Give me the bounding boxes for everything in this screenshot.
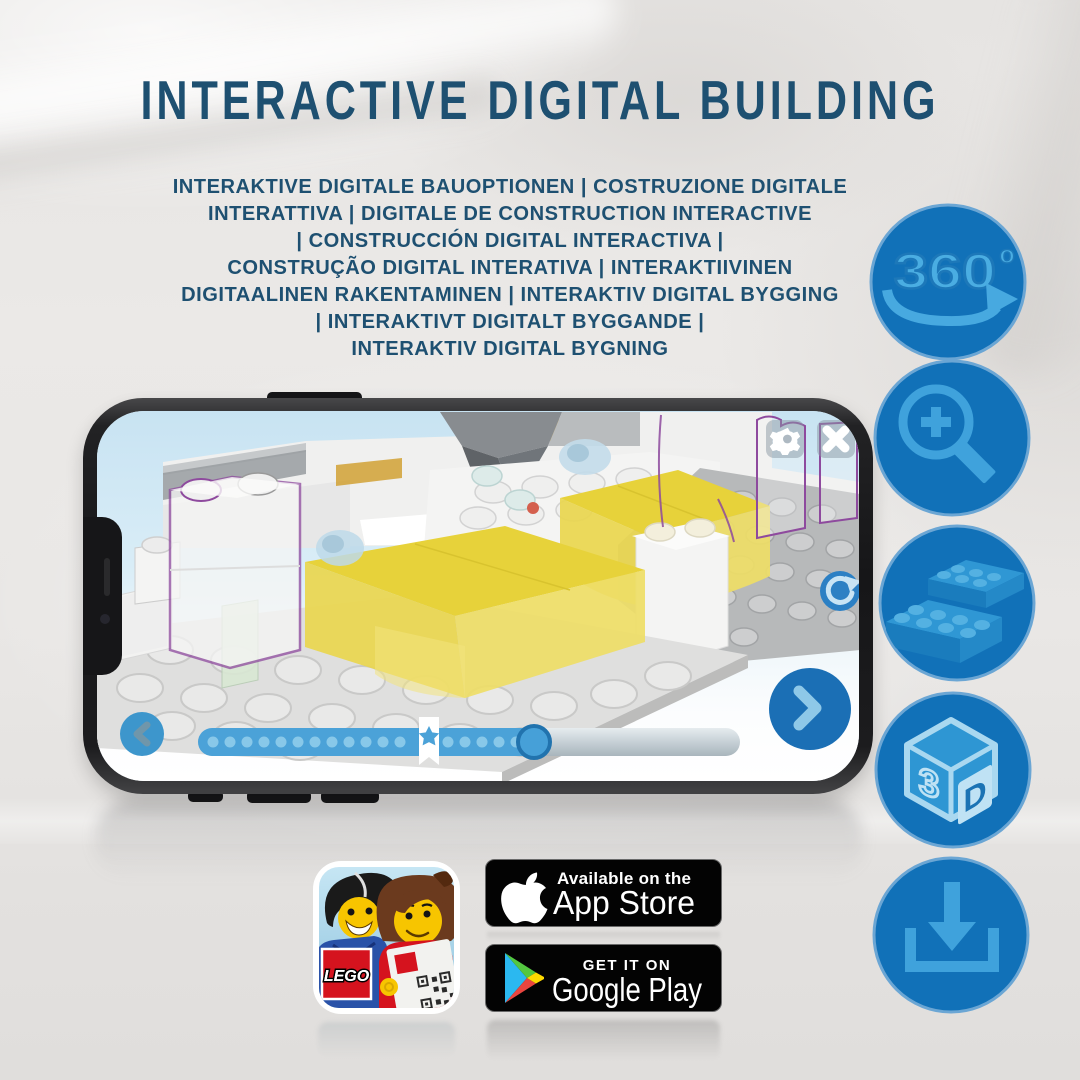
svg-text:LEGO: LEGO xyxy=(324,968,370,985)
svg-text:3: 3 xyxy=(919,760,940,808)
svg-text:App Store: App Store xyxy=(553,884,695,921)
svg-text:Google Play: Google Play xyxy=(552,971,702,1008)
svg-text:360: 360 xyxy=(894,245,996,299)
svg-text:o: o xyxy=(999,241,1014,269)
